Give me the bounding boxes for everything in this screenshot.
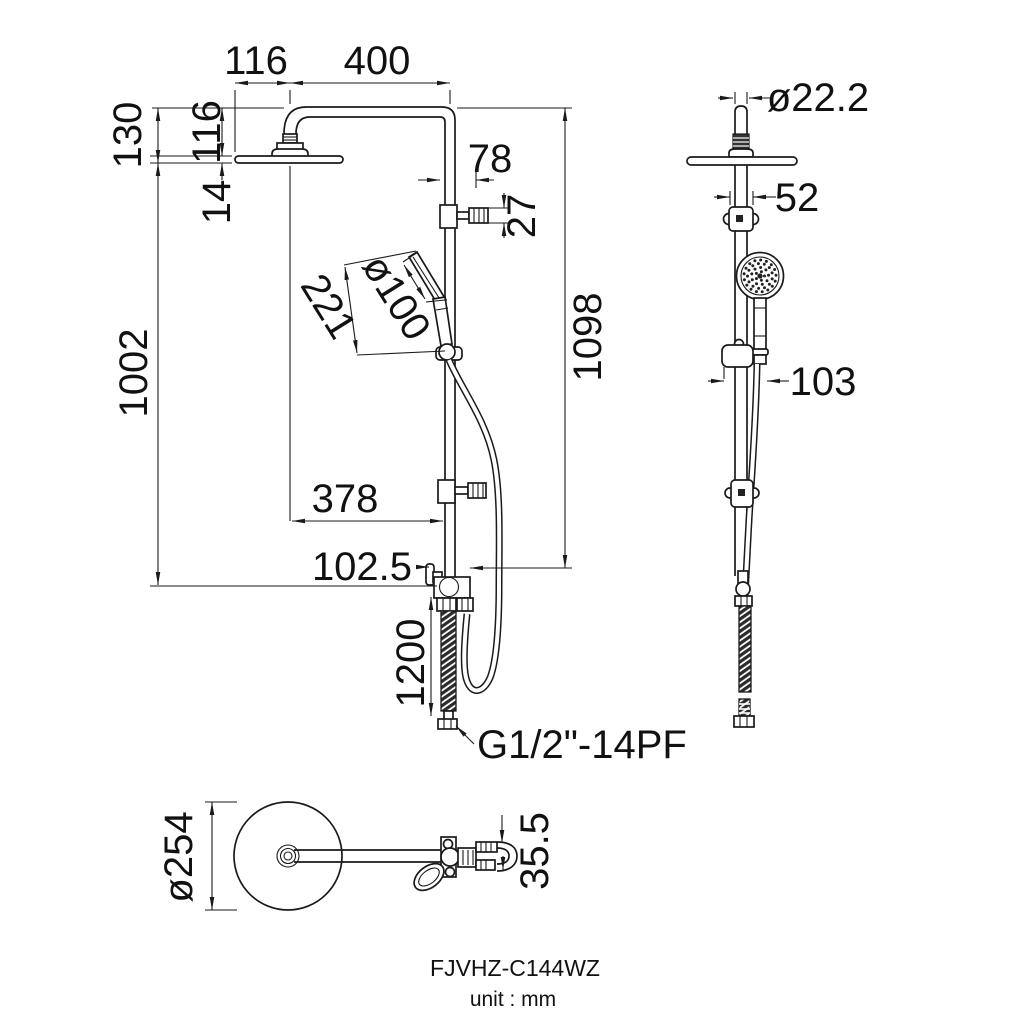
rain-head-side: [687, 157, 797, 165]
dim-pipe-diameter: ø22.2: [767, 76, 869, 120]
dim-valve-offset: 102.5: [312, 545, 412, 589]
unit-note: unit : mm: [470, 988, 556, 1011]
slider-bracket-side: [722, 340, 753, 368]
dim-bracket-width: 52: [775, 176, 820, 220]
upper-diverter-knob: [440, 205, 488, 228]
dim-diverter-knob-height: 27: [500, 194, 544, 239]
dim-head-offset: 116: [224, 39, 288, 83]
dim-head-diameter: ø254: [157, 811, 201, 902]
dim-top-to-head-top: 116: [185, 100, 229, 164]
valve-top: [458, 842, 497, 870]
title-block: FJVHZ-C144WZ unit : mm: [430, 955, 600, 1011]
dim-head-thickness: 14: [195, 180, 239, 225]
dim-inlet-thread: G1/2"-14PF: [477, 723, 687, 767]
dim-handshower-length: 221: [292, 267, 365, 347]
supply-hose-front: [438, 611, 457, 729]
dim-column-length: 1098: [566, 293, 610, 382]
dim-hose-length: 1200: [389, 619, 433, 708]
rain-head-front: [235, 156, 343, 163]
upper-bracket-side: [724, 207, 759, 231]
side-view: ø22.2 52 103: [687, 76, 869, 727]
front-view: 116 400 130 116 14 1002 1098 78: [106, 39, 687, 767]
front-dimensions: 116 400 130 116 14 1002 1098 78: [106, 39, 687, 767]
dim-wall-clearance: 103: [790, 360, 857, 404]
lower-diverter-knob: [438, 480, 486, 503]
technical-drawing: 116 400 130 116 14 1002 1098 78: [0, 0, 1024, 1024]
dim-handshower-diameter: ø100: [353, 247, 439, 348]
dim-top-to-head-bottom: 130: [106, 102, 150, 169]
rain-head-top: [234, 802, 342, 910]
inlet-valve-front: [426, 564, 473, 611]
dim-diverter-offset: 78: [468, 137, 513, 181]
dim-head-center-to-column: 378: [312, 477, 379, 521]
dim-outlet-spacing: 35.5: [513, 812, 557, 890]
dim-arm-reach: 400: [344, 39, 411, 83]
drawing-page: 116 400 130 116 14 1002 1098 78: [0, 0, 1024, 1024]
dim-head-to-valve: 1002: [112, 329, 156, 418]
supply-hose-side: [734, 606, 754, 727]
model-number: FJVHZ-C144WZ: [430, 955, 600, 981]
top-view: ø254 35.5: [157, 802, 557, 910]
top-dimensions: ø254 35.5: [157, 802, 557, 910]
